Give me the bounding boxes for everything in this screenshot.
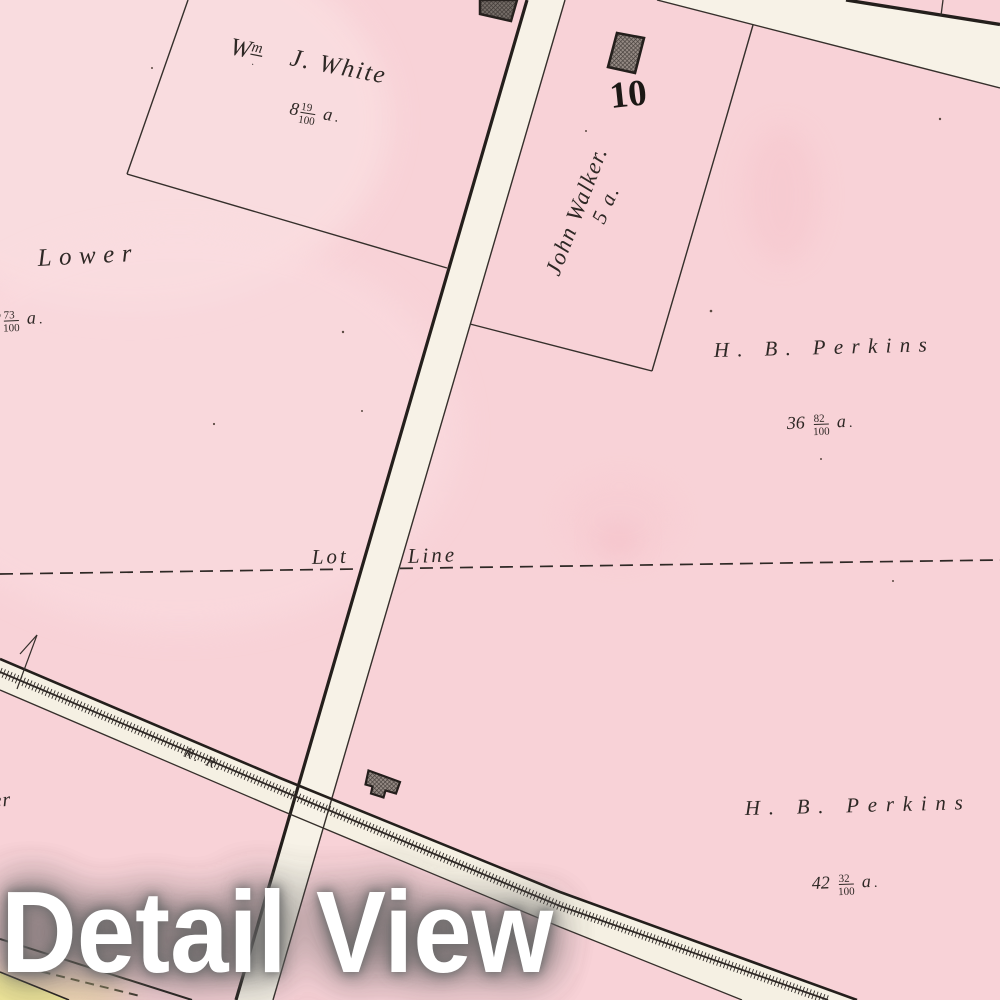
svg-text:100: 100 — [838, 886, 855, 899]
svg-text:er: er — [0, 789, 12, 812]
svg-text:100: 100 — [813, 426, 830, 439]
svg-text:a: a — [836, 411, 846, 431]
svg-text:.: . — [39, 312, 43, 327]
svg-text:36: 36 — [785, 412, 805, 433]
svg-text:10: 10 — [608, 72, 649, 117]
svg-text:a: a — [26, 307, 36, 327]
svg-text:100: 100 — [3, 322, 20, 335]
svg-text:73: 73 — [3, 309, 15, 321]
svg-text:a: a — [861, 871, 871, 891]
svg-text:.: . — [874, 876, 878, 891]
svg-text:82: 82 — [813, 413, 824, 425]
svg-text:32: 32 — [838, 873, 849, 885]
svg-text:Lot: Lot — [310, 544, 349, 569]
svg-text:.: . — [849, 416, 853, 431]
svg-text:42: 42 — [811, 872, 830, 893]
svg-text:Detail View: Detail View — [1, 868, 554, 997]
svg-text:Line: Line — [406, 542, 457, 568]
